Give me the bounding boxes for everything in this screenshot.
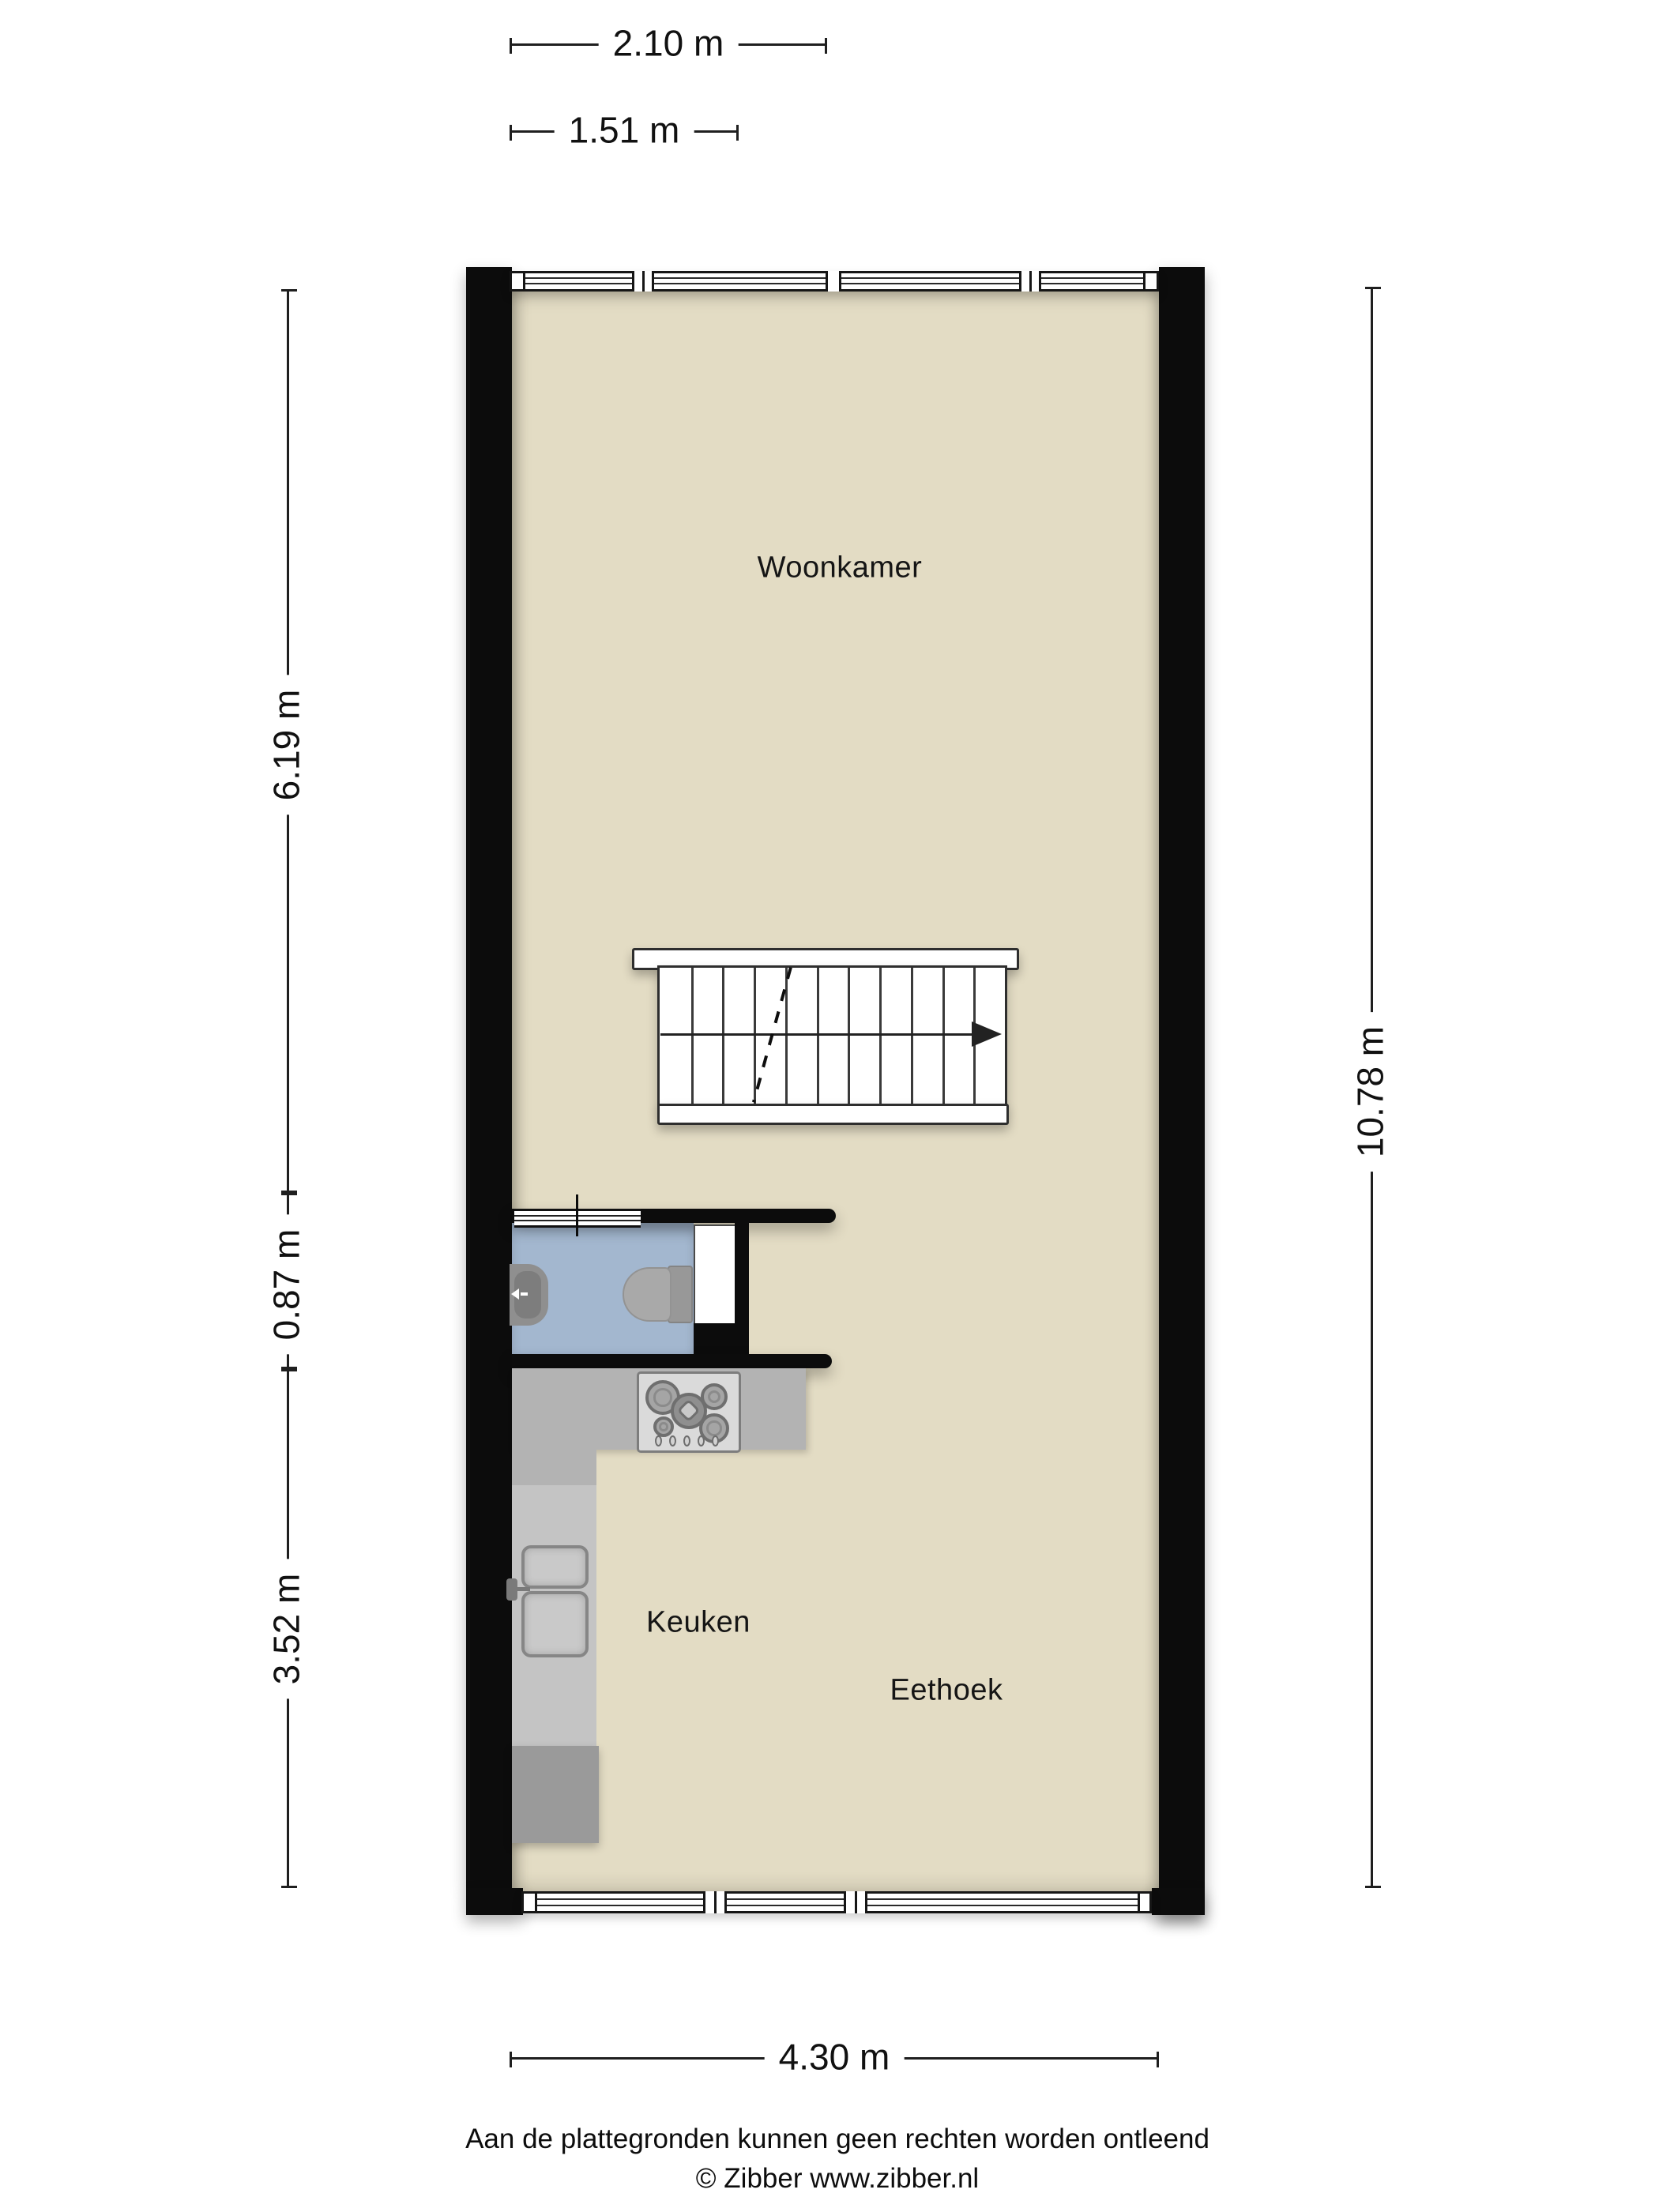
wall-corner-bottom-right [1152,1888,1205,1915]
stove-hob [637,1371,741,1453]
dimension-label-left-lower: 3.52 m [267,1559,307,1699]
toilet-sink-faucet-icon [511,1288,519,1300]
hob-knob-5 [712,1435,719,1446]
stair-tread-line [911,968,913,1106]
toilet-window-tick [576,1194,578,1236]
toilet-door [694,1224,736,1325]
window-mullion-top-2 [826,271,841,292]
stair-tread-line [754,968,756,1106]
stair-tread-line [942,968,945,1106]
stair-tread-line [848,968,850,1106]
hob-knob-1 [655,1435,662,1446]
kitchen-sink-upper [521,1545,589,1589]
kitchen-counter-left-upper [512,1450,596,1485]
window-mullion-bottom-1 [703,1891,727,1913]
dimension-label-top-inner: 1.51 m [555,111,694,151]
footer-copyright: © Zibber www.zibber.nl [696,2163,979,2195]
stair-direction-line [660,1033,975,1036]
stair-tread-line [691,968,694,1106]
kitchen-cabinet-dark [512,1746,599,1843]
kitchen-faucet-icon [506,1578,517,1601]
hob-knob-4 [698,1435,705,1446]
burner-center [671,1393,707,1429]
window-mullion-bottom-2 [844,1891,867,1913]
wall-left [466,267,512,1888]
wall-right [1159,267,1205,1915]
toilet-sink [510,1264,548,1326]
wall-kitchen-top [512,1354,832,1368]
dimension-label-left-upper: 6.19 m [267,675,307,815]
window-band-top [510,271,1159,292]
window-endcap-bottom-left [521,1891,537,1913]
window-endcap-left [510,271,525,292]
wall-toilet-door-block [694,1323,749,1354]
window-endcap-bottom-right [1138,1891,1152,1913]
stair-tread-line [722,968,724,1106]
hob-knob-2 [669,1435,676,1446]
window-band-bottom [521,1891,1152,1913]
stair-tread-line [879,968,882,1106]
room-label-dining: Eethoek [890,1674,1003,1708]
staircase-body [657,965,1007,1108]
room-label-living: Woonkamer [758,551,923,585]
staircase-bottom-step [657,1104,1009,1125]
dimension-label-bottom: 4.30 m [765,2037,905,2078]
kitchen-sink-lower [521,1591,589,1657]
footer-disclaimer: Aan de plattegronden kunnen geen rechten… [465,2124,1209,2155]
window-endcap-right [1143,271,1159,292]
wall-corner-bottom-left [466,1888,523,1915]
wall-toilet-door-side [735,1223,749,1323]
hob-knob-3 [683,1435,690,1446]
window-mullion-top-1 [632,271,654,292]
dimension-label-right: 10.78 m [1351,1012,1391,1172]
burner-bottom-left [653,1416,674,1437]
window-mullion-top-3 [1019,271,1041,292]
dimension-label-top-outer: 2.10 m [599,24,739,64]
stair-direction-arrow-icon [972,1021,1002,1047]
stair-tread-line [817,968,819,1106]
toilet-sink-faucet-dot [521,1292,528,1296]
dimension-label-left-middle: 0.87 m [267,1215,307,1355]
toilet-bowl [623,1267,671,1322]
room-label-kitchen: Keuken [646,1606,750,1640]
floorplan-canvas: 2.10 m 1.51 m 6.19 m 0.87 m 3.52 m 10.78… [0,0,1659,2212]
